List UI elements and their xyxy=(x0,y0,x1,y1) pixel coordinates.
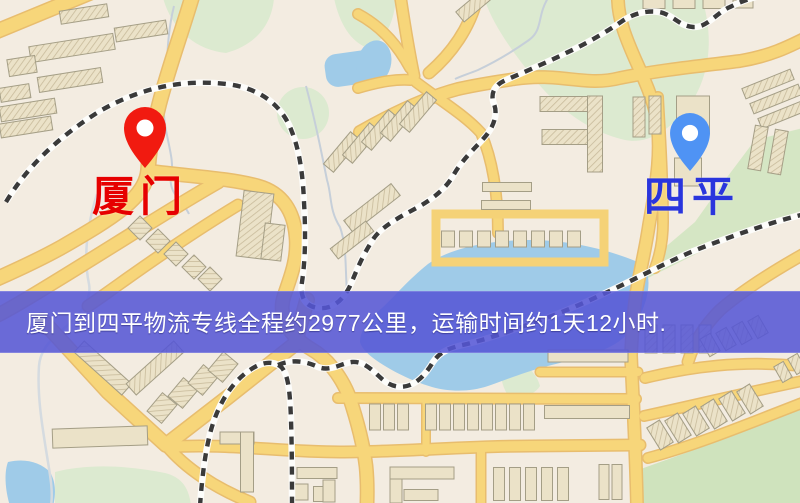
map-screenshot: 厦门 四平 厦门到四平物流专线全程约2977公里，运输时间约1天12小时. xyxy=(0,0,800,503)
route-info-banner: 厦门到四平物流专线全程约2977公里，运输时间约1天12小时. xyxy=(0,291,800,353)
origin-city-label: 厦门 xyxy=(92,176,188,218)
map-image xyxy=(0,0,800,503)
destination-city-label: 四平 xyxy=(644,176,740,218)
route-info-text: 厦门到四平物流专线全程约2977公里，运输时间约1天12小时. xyxy=(26,292,666,354)
